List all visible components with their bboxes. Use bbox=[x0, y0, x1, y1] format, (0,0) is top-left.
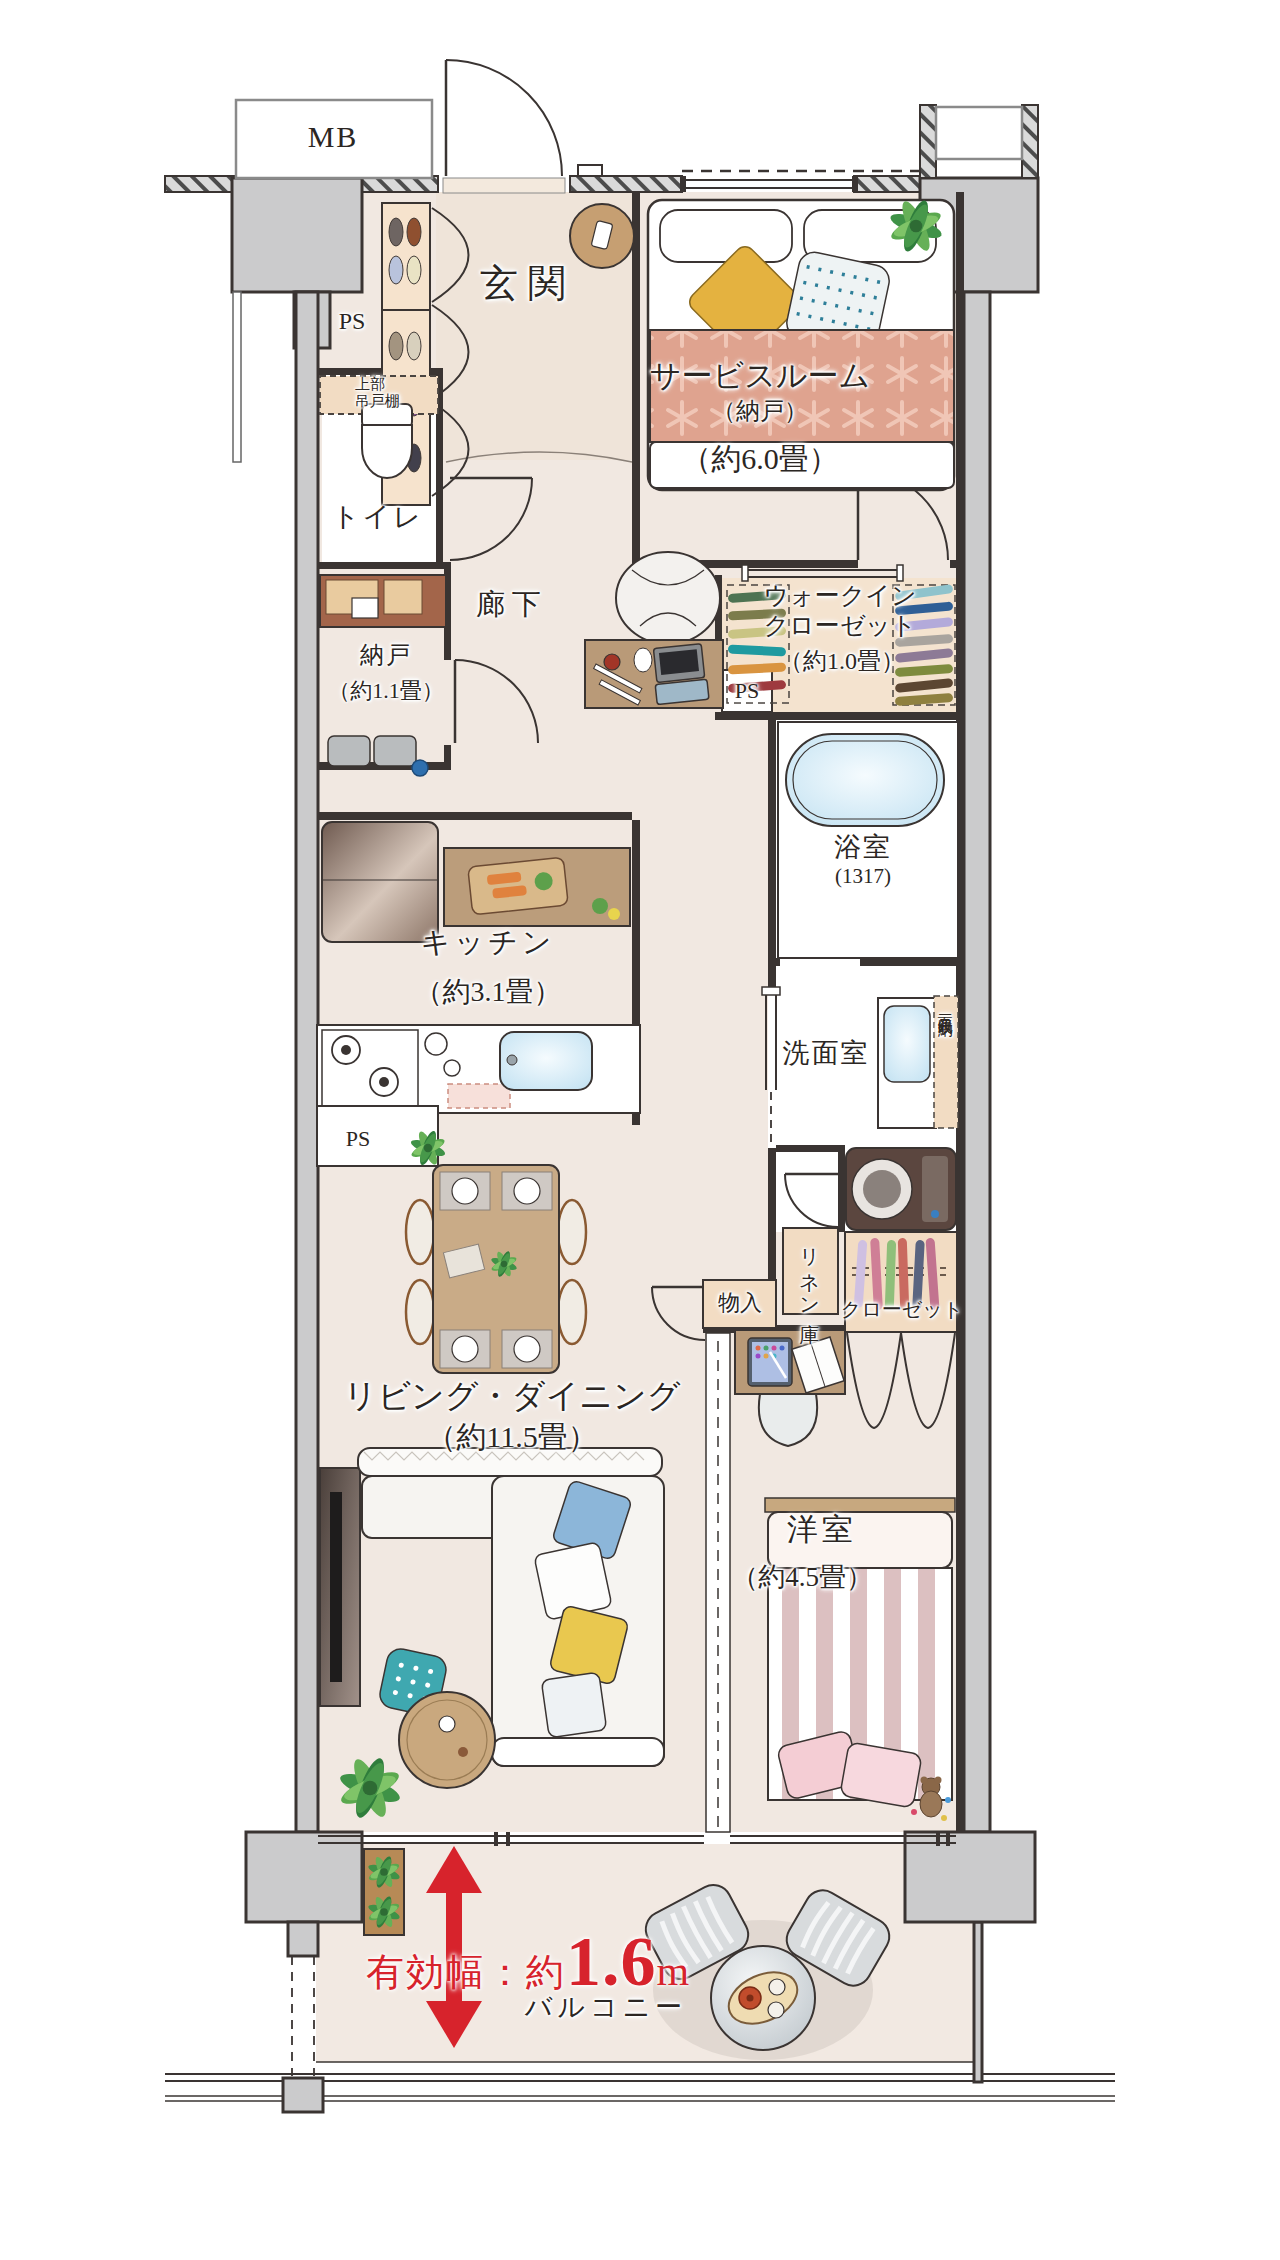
upper-cabinet-label1: 上部 bbox=[355, 376, 385, 393]
wic-label1: ウォークイン bbox=[764, 582, 917, 611]
wash-basin bbox=[884, 1006, 930, 1082]
effective-width-prefix: 有効幅：約 bbox=[366, 1947, 566, 1998]
stove bbox=[322, 1030, 418, 1108]
bathroom-label: 浴室 bbox=[834, 832, 892, 863]
balcony-label: バルコニー bbox=[525, 1992, 688, 2023]
ps-top-label: PS bbox=[339, 308, 366, 336]
ps-kitchen-label: PS bbox=[346, 1126, 370, 1151]
kitchen-size: （約3.1畳） bbox=[415, 976, 562, 1008]
mirror-cabinet-box bbox=[934, 996, 958, 1128]
western-room-label: 洋室 bbox=[787, 1512, 857, 1548]
coffee-table bbox=[399, 1692, 495, 1788]
floor-plan: MB PS 玄関 サービスルーム （納戸） （約6.0畳） 上部 吊戸棚 トイレ… bbox=[0, 0, 1280, 2260]
service-room-sub: （納戸） bbox=[712, 398, 808, 426]
dining-set bbox=[406, 1165, 586, 1373]
monoire-label: 物入 bbox=[718, 1290, 762, 1315]
linen-label: リネン庫 bbox=[798, 1234, 821, 1310]
refrigerator bbox=[322, 822, 438, 942]
laptop bbox=[651, 643, 709, 704]
floor-plan-drawing bbox=[0, 0, 1280, 2260]
tv-screen bbox=[330, 1492, 342, 1682]
effective-width-value: 1.6 bbox=[566, 1922, 657, 2002]
window-top bbox=[680, 176, 858, 192]
closet-label: クローゼット bbox=[841, 1298, 963, 1321]
desk-chair bbox=[616, 552, 720, 644]
entrance-label: 玄関 bbox=[480, 262, 576, 306]
upper-cabinet-label2: 吊戸棚 bbox=[355, 393, 400, 410]
nando-label: 納戸 bbox=[360, 642, 412, 670]
mb-label: MB bbox=[308, 120, 359, 155]
wic-label2: クローゼット bbox=[764, 612, 917, 641]
toilet-bowl bbox=[362, 425, 412, 478]
counter-hatch bbox=[448, 1084, 510, 1108]
service-room-size: （約6.0畳） bbox=[681, 442, 839, 477]
cutting-board bbox=[468, 857, 568, 915]
nando-size: （約1.1畳） bbox=[328, 678, 444, 703]
living-dining-size: （約11.5畳） bbox=[426, 1420, 597, 1455]
living-dining-label: リビング・ダイニング bbox=[344, 1378, 681, 1416]
kitchen-label: キッチン bbox=[421, 926, 556, 959]
western-room-size: （約4.5畳） bbox=[731, 1562, 873, 1593]
ps-mid-label: PS bbox=[735, 678, 759, 703]
mirror-cabinet-label: 三面鏡収納 bbox=[936, 1002, 953, 1012]
washing-machine bbox=[846, 1148, 956, 1230]
cup bbox=[604, 654, 620, 670]
hallway-label: 廊下 bbox=[476, 588, 548, 621]
effective-width-label: 有効幅：約1.6m bbox=[366, 1922, 689, 2002]
wic-size: （約1.0畳） bbox=[779, 648, 905, 676]
washroom-label: 洗面室 bbox=[783, 1038, 870, 1069]
bathroom-size: (1317) bbox=[835, 864, 891, 888]
effective-width-unit: m bbox=[657, 1947, 690, 1995]
service-room-label: サービスルーム bbox=[650, 358, 871, 394]
toilet-label: トイレ bbox=[332, 502, 424, 533]
